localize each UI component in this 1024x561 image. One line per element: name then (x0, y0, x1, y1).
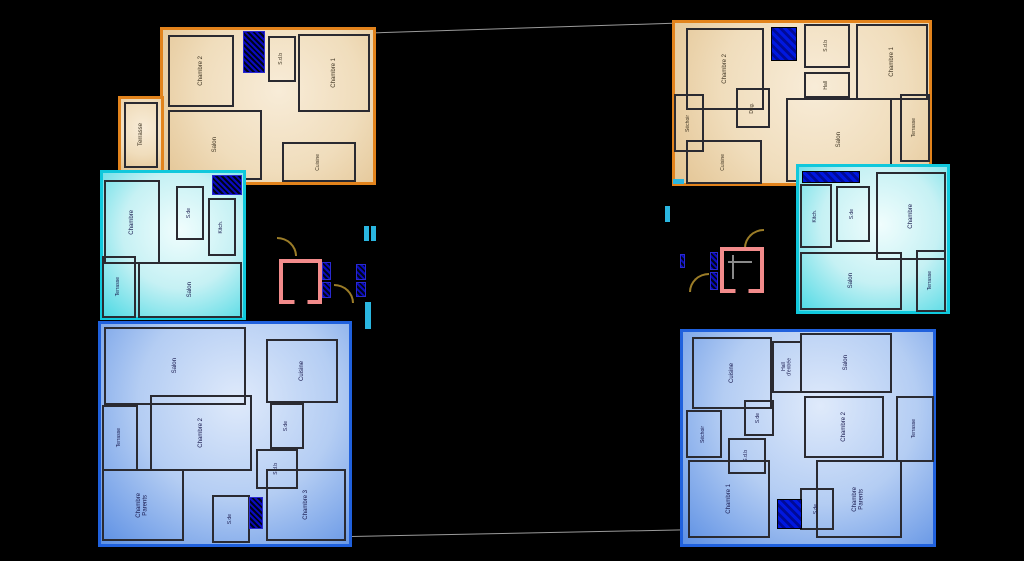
room-label: Terrasse (138, 123, 145, 146)
room-label: S.de (814, 504, 820, 514)
room-terrasse: Terrasse (896, 396, 934, 462)
elevator-door-opening (294, 300, 307, 304)
room-terrasse: Terrasse (102, 256, 136, 318)
room-label: S.d.b (279, 53, 285, 65)
window-bar (371, 226, 376, 241)
elevator-door-opening (736, 289, 749, 293)
room-label: Cuisine (729, 363, 736, 383)
room-label: Hall d'entrée (782, 358, 793, 376)
room-label: Salon (187, 282, 194, 297)
room-label: S.de (284, 421, 290, 431)
room-salon: Salon (800, 252, 902, 310)
window-bar (665, 206, 670, 222)
room-chambre: Chambre (104, 180, 160, 264)
room-chambre-parents: Chambre Parents (102, 469, 184, 541)
room-degagement: Dég. (736, 88, 770, 128)
stair-symbol (277, 237, 297, 256)
room-label: Salon (172, 358, 179, 373)
room-salon: Salon (138, 262, 242, 318)
room-label: Chambre 2 (198, 56, 205, 86)
room-label: Terrasse (116, 277, 122, 296)
room-label: Terrasse (912, 419, 918, 438)
room-sdb: S.d.b (804, 24, 850, 68)
survey-line-bottom (352, 529, 701, 537)
room-hall-entree: Hall d'entrée (772, 341, 802, 393)
room-label: Chambre 3 (303, 490, 310, 520)
room-label: Chambre Parents (852, 487, 865, 512)
room-label: S.de (850, 209, 856, 219)
stair-symbol (334, 284, 354, 303)
room-label: Kitch. (813, 210, 819, 223)
survey-line-top (355, 22, 696, 34)
balcony-void (771, 27, 797, 61)
room-terrasse: Terrasse (124, 102, 158, 168)
room-cuisine: Cuisine (686, 140, 762, 184)
room-chambre-2: Chambre 2 (168, 35, 234, 107)
balcony-void (777, 499, 802, 529)
window-bar (364, 226, 369, 241)
duct-shaft (212, 175, 242, 195)
room-chambre-1: Chambre 1 (298, 34, 370, 112)
room-sechoir: Séchoir (686, 410, 722, 458)
duct-shaft (356, 282, 366, 297)
room-cuisine: Cuisine (266, 339, 338, 403)
window-bar (365, 302, 371, 329)
room-label: Cuisine (299, 361, 306, 381)
duct-shaft (710, 252, 718, 270)
room-sde: S.de (836, 186, 870, 242)
room-label: Chambre (908, 204, 915, 229)
room-sde: S.de (744, 400, 774, 436)
window-bar (673, 179, 684, 184)
stair-symbol (744, 229, 764, 248)
room-terrasse: Terrasse (916, 250, 946, 312)
room-cuisine: Cuisine (692, 337, 772, 409)
room-label: Chambre 1 (726, 484, 733, 514)
room-label: Chambre Parents (136, 493, 149, 518)
duct-shaft (322, 282, 331, 298)
room-label: Terrasse (117, 428, 123, 447)
room-label: Chambre 1 (331, 58, 338, 88)
room-terrasse: Terrasse (102, 405, 138, 471)
room-chambre-2: Chambre 2 (804, 396, 884, 458)
duct-shaft (243, 31, 265, 73)
duct-shaft (249, 497, 263, 529)
room-label: Salon (843, 355, 850, 370)
room-terrasse: Terrasse (900, 94, 930, 162)
duct-shaft (356, 264, 366, 280)
room-label: Cuisine (721, 154, 727, 171)
room-sde-2: S.de (800, 488, 834, 530)
room-sde: S.de (270, 403, 304, 449)
room-label: Cuisine (316, 154, 322, 171)
room-label: Salon (836, 132, 843, 147)
room-label: S.de (187, 208, 193, 218)
stair-symbol (689, 273, 709, 292)
room-kitchenette: Kitch. (208, 198, 236, 256)
room-label: Salon (848, 273, 855, 288)
elevator-shaft (279, 259, 322, 304)
room-chambre-3: Chambre 3 (266, 469, 346, 541)
room-label: S.de (228, 514, 234, 524)
room-sde-2: S.de (212, 495, 250, 543)
room-sdb: S.d.b (268, 36, 296, 82)
room-label: Hall (824, 81, 830, 90)
room-chambre-1: Chambre 1 (688, 460, 770, 538)
room-label: Dég. (750, 103, 756, 114)
duct-shaft (680, 254, 685, 268)
room-label: Chambre 1 (889, 47, 896, 77)
floor-plan-canvas: Terrasse Chambre 2 S.d.b Chambre 1 Salon… (0, 0, 1024, 561)
room-label: Chambre (129, 210, 136, 235)
room-chambre-2: Chambre 2 (150, 395, 252, 471)
room-label: Terrasse (912, 118, 918, 137)
room-label: Terrasse (928, 271, 934, 290)
room-label: Chambre 2 (198, 418, 205, 448)
room-label: Séchoir (686, 115, 692, 132)
room-label: Salon (212, 137, 219, 152)
room-kitchenette: Kitch. (800, 184, 832, 248)
room-label: Kitch. (219, 221, 225, 234)
duct-shaft (322, 262, 331, 280)
room-label: Chambre 2 (841, 412, 848, 442)
elevator-shaft (720, 247, 764, 293)
room-label: S.d.b (824, 40, 830, 52)
elevator-dimension-arrow (732, 255, 734, 279)
room-chambre: Chambre (876, 172, 946, 260)
room-sde: S.de (176, 186, 204, 240)
room-label: Chambre 2 (722, 54, 729, 84)
room-salon: Salon (800, 333, 892, 393)
duct-shaft (710, 272, 718, 290)
balcony-void (802, 171, 860, 183)
room-chambre-1: Chambre 1 (856, 24, 928, 100)
room-hall: Hall (804, 72, 850, 98)
room-label: Séchoir (701, 426, 707, 443)
room-cuisine: Cuisine (282, 142, 356, 182)
room-label: S.de (756, 413, 762, 423)
room-salon: Salon (104, 327, 246, 405)
